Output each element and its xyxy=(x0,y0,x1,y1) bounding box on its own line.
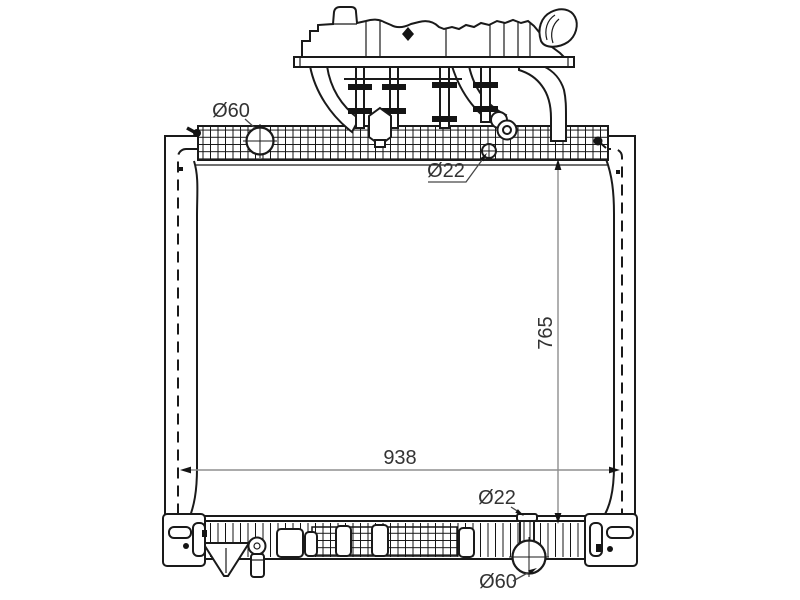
dim-label-bottom-port: Ø60 xyxy=(479,571,517,593)
drain-fitting xyxy=(249,538,266,578)
frame-pin-right xyxy=(616,170,620,174)
filler-cap xyxy=(539,9,576,46)
bottom-bracket-left xyxy=(163,514,207,566)
dim-label-core-width: 938 xyxy=(383,447,416,469)
dim-label-core-height: 765 xyxy=(535,316,557,349)
radiator-technical-drawing: 938 765 Ø60 Ø22 Ø22 Ø60 xyxy=(0,0,800,600)
bottom-tank xyxy=(163,514,637,577)
clip-left xyxy=(193,129,201,137)
dim-label-top-fitting: Ø22 xyxy=(427,160,465,182)
tank-body xyxy=(302,7,564,57)
radiator-frame xyxy=(165,136,635,540)
drawing-canvas: 938 765 Ø60 Ø22 Ø22 Ø60 xyxy=(0,0,800,600)
dim-label-bottom-fitting: Ø22 xyxy=(478,487,516,509)
bottom-bracket-right xyxy=(585,514,637,566)
frame-pin-left xyxy=(179,167,183,171)
bottom-vent-fitting xyxy=(517,514,537,543)
dim-label-top-port: Ø60 xyxy=(212,100,250,122)
tank-flange xyxy=(294,57,574,67)
dimensions: 938 765 Ø60 Ø22 Ø22 Ø60 xyxy=(180,100,620,593)
